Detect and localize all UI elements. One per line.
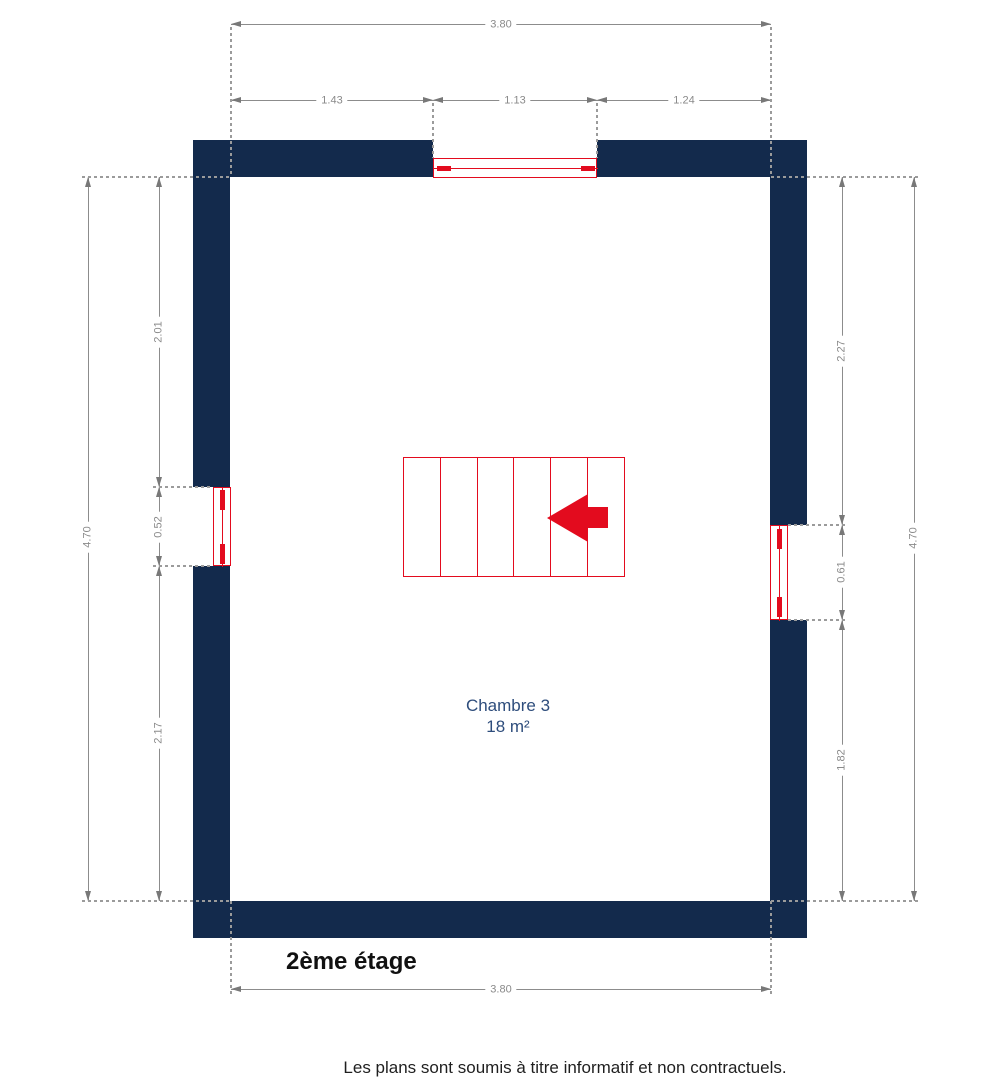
dim-arrow bbox=[231, 986, 241, 992]
window-top bbox=[433, 158, 597, 178]
dim-arrow bbox=[433, 97, 443, 103]
extension-line bbox=[82, 900, 231, 902]
dim-arrow bbox=[156, 177, 162, 187]
dim-arrow bbox=[85, 177, 91, 187]
wall-right-lower bbox=[770, 620, 807, 938]
extension-line bbox=[153, 486, 213, 488]
extension-line bbox=[432, 103, 434, 158]
dim-label-left-seg2: 0.52 bbox=[153, 511, 166, 542]
staircase bbox=[403, 457, 625, 577]
dim-label-right-seg3: 1.82 bbox=[836, 744, 849, 775]
extension-line bbox=[230, 901, 232, 994]
floor-label: 2ème étage bbox=[286, 948, 417, 976]
room-name: Chambre 3 bbox=[408, 695, 608, 716]
dim-arrow bbox=[423, 97, 433, 103]
dim-arrow bbox=[231, 21, 241, 27]
extension-line bbox=[770, 901, 772, 994]
dim-label-right-overall: 4.70 bbox=[908, 522, 921, 553]
dim-arrow bbox=[156, 566, 162, 576]
extension-line bbox=[771, 900, 920, 902]
stair-tread bbox=[441, 458, 478, 576]
dim-label-top-overall: 3.80 bbox=[485, 19, 516, 32]
dim-label-right-seg1: 2.27 bbox=[836, 335, 849, 366]
dim-label-left-seg3: 2.17 bbox=[153, 717, 166, 748]
dim-label-top-seg3: 1.24 bbox=[668, 95, 699, 108]
disclaimer-text: Les plans sont soumis à titre informatif… bbox=[280, 1058, 850, 1078]
dim-label-left-seg1: 2.01 bbox=[153, 316, 166, 347]
dim-arrow bbox=[231, 97, 241, 103]
dim-arrow bbox=[839, 177, 845, 187]
extension-line bbox=[788, 619, 848, 621]
extension-line bbox=[153, 565, 213, 567]
dim-arrow bbox=[587, 97, 597, 103]
dim-label-right-seg2: 0.61 bbox=[836, 556, 849, 587]
extension-line bbox=[596, 103, 598, 158]
stair-tread bbox=[514, 458, 551, 576]
dim-line-right-segments bbox=[842, 177, 843, 901]
stair-tread bbox=[478, 458, 515, 576]
dim-arrow bbox=[839, 620, 845, 630]
dim-arrow bbox=[911, 177, 917, 187]
room-area: 18 m² bbox=[408, 716, 608, 737]
window-right bbox=[770, 525, 788, 620]
wall-right-upper bbox=[770, 140, 807, 525]
dim-label-top-seg1: 1.43 bbox=[316, 95, 347, 108]
extension-line bbox=[771, 176, 920, 178]
extension-line bbox=[82, 176, 231, 178]
dim-arrow bbox=[597, 97, 607, 103]
floor-plan: 3.80 1.43 1.13 1.24 4.70 2.01 0.52 2.17 … bbox=[0, 0, 1001, 1080]
room-label: Chambre 3 18 m² bbox=[408, 695, 608, 737]
extension-line bbox=[770, 27, 772, 177]
dim-arrow bbox=[156, 487, 162, 497]
extension-line bbox=[230, 27, 232, 177]
stair-tread bbox=[404, 458, 441, 576]
stair-direction-arrow-icon bbox=[547, 494, 609, 543]
dim-label-left-overall: 4.70 bbox=[82, 521, 95, 552]
dim-label-bottom-overall: 3.80 bbox=[485, 984, 516, 997]
dim-arrow bbox=[761, 21, 771, 27]
extension-line bbox=[788, 524, 848, 526]
wall-left-upper bbox=[193, 140, 230, 487]
wall-left-lower bbox=[193, 566, 230, 938]
dim-label-top-seg2: 1.13 bbox=[499, 95, 530, 108]
window-left bbox=[213, 487, 231, 566]
dim-arrow bbox=[839, 525, 845, 535]
wall-bottom bbox=[193, 901, 807, 938]
